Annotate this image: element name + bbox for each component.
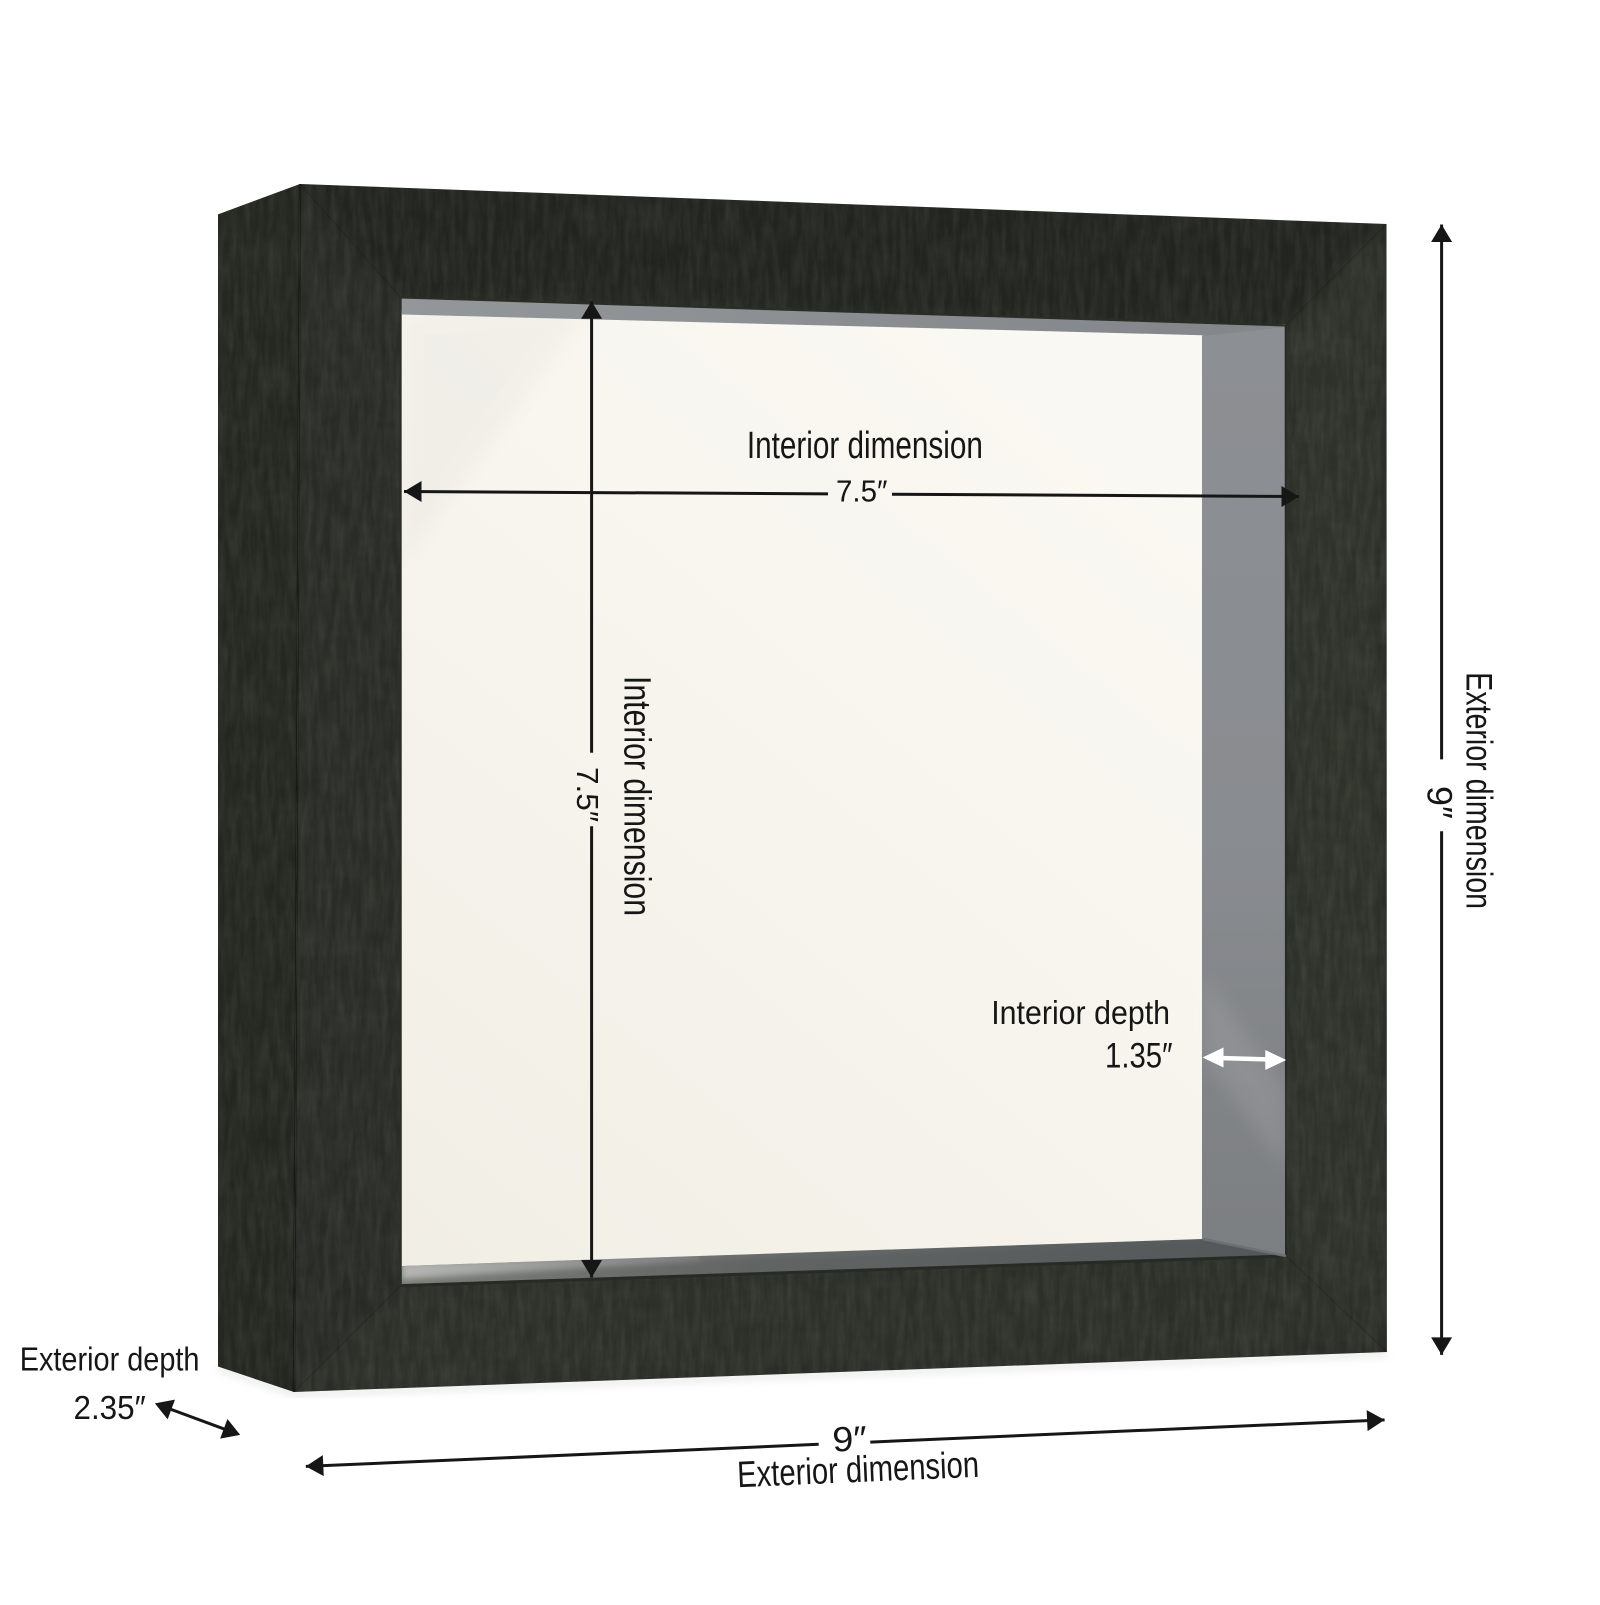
svg-text:7.5″: 7.5″: [570, 767, 605, 822]
svg-text:9″: 9″: [1420, 786, 1459, 819]
svg-text:Exterior dimension: Exterior dimension: [1459, 672, 1500, 909]
svg-text:7.5″: 7.5″: [836, 474, 888, 509]
svg-text:Interior depth: Interior depth: [991, 994, 1170, 1031]
svg-text:1.35″: 1.35″: [1105, 1037, 1173, 1076]
svg-text:Interior dimension: Interior dimension: [616, 676, 658, 916]
svg-text:Interior dimension: Interior dimension: [747, 425, 983, 467]
svg-text:2.35″: 2.35″: [74, 1389, 146, 1426]
svg-text:Exterior depth: Exterior depth: [20, 1341, 200, 1378]
